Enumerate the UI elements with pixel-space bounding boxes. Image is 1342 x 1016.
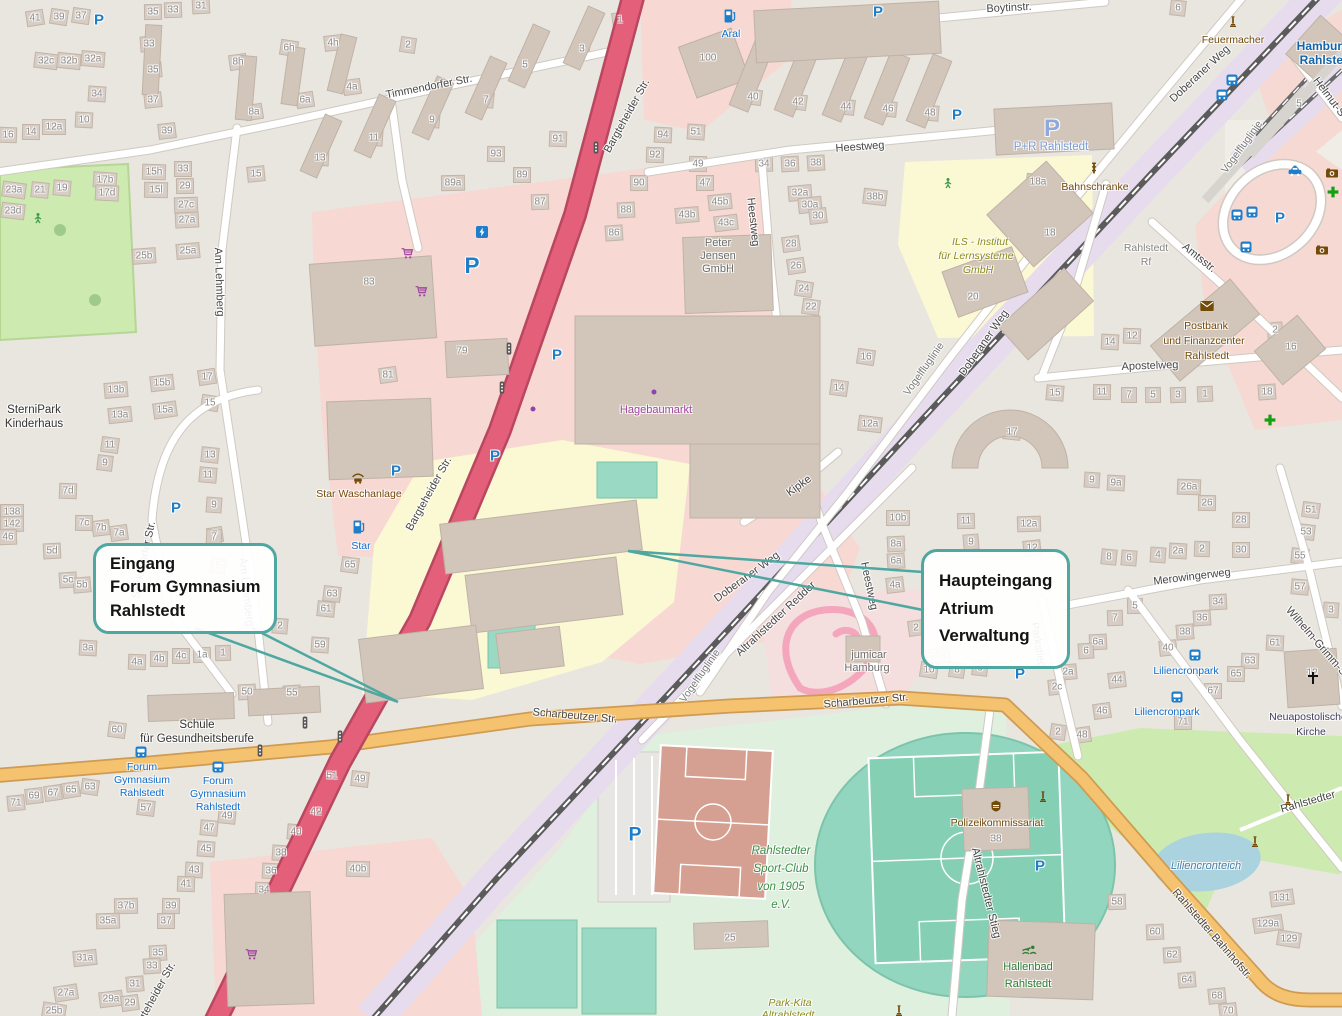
house-number: 33	[143, 39, 154, 50]
house-number: 57	[1294, 582, 1305, 593]
callout-main-entrance-atrium: Haupteingang Atrium Verwaltung	[921, 549, 1070, 669]
house-number: 20	[967, 292, 978, 303]
house-number: 65	[1230, 669, 1241, 680]
house-number: 6a	[299, 95, 310, 106]
house-number: 51	[690, 127, 701, 138]
house-number: 32b	[61, 56, 78, 67]
house-number: 4h	[327, 38, 338, 49]
supermarket-cart-icon	[401, 247, 414, 260]
poi-label: Postbank	[1184, 320, 1228, 332]
map-canvas[interactable]: Bargteheider Str.Bargteheider Str.Bargte…	[0, 0, 1342, 1016]
poi-label: Gymnasium	[114, 774, 170, 786]
house-number: 12a	[862, 419, 879, 430]
house-number: 67	[1207, 686, 1218, 697]
house-number: 34	[258, 885, 269, 896]
house-number: 22	[805, 302, 816, 313]
house-number: 6	[1083, 646, 1089, 657]
parking-icon: P	[873, 5, 883, 20]
bus-stop-icon	[1190, 650, 1201, 661]
house-number: 36	[265, 866, 276, 877]
house-number: 15b	[154, 378, 171, 389]
house-number: 8	[1106, 552, 1112, 563]
house-number: 13	[314, 153, 325, 164]
poi-label: GmbH	[963, 264, 993, 276]
house-number: 1	[1202, 389, 1208, 400]
house-number: 26a	[1181, 482, 1198, 493]
house-number: 83	[363, 277, 374, 288]
house-number: 16	[2, 130, 13, 141]
house-number: 13b	[108, 385, 125, 396]
house-number: 87	[534, 197, 545, 208]
house-number: 8a	[890, 539, 901, 550]
house-number: 2a	[1062, 667, 1073, 678]
house-number: 46	[1096, 706, 1107, 717]
house-number: 40	[1162, 643, 1173, 654]
house-number: 11	[369, 133, 379, 144]
church-cross-icon	[1308, 672, 1318, 685]
house-number: 23d	[5, 206, 22, 217]
house-number: 65	[344, 560, 355, 571]
street-label: Timmendorfer Str.	[385, 73, 473, 101]
house-number: 35a	[100, 916, 117, 927]
traffic-light-icon	[499, 382, 505, 395]
house-number: 81	[382, 370, 393, 381]
street-label: Heestweg	[835, 139, 885, 154]
house-number: 17b	[97, 175, 114, 186]
house-number: 7b	[95, 523, 106, 534]
house-number: 37	[160, 916, 171, 927]
house-number: 31	[195, 1, 206, 12]
house-number: 5d	[46, 546, 57, 557]
poi-label: Kinderhaus	[5, 418, 63, 430]
house-number: 3a	[82, 643, 93, 654]
callout-line: Haupteingang	[939, 567, 1052, 595]
street-label: Vogelfluglinie	[901, 340, 946, 398]
house-number: 2	[913, 623, 919, 634]
poi-label: Hamburg-	[1297, 39, 1342, 53]
house-number: 11	[203, 470, 213, 481]
house-number: 4a	[346, 82, 357, 93]
street-label: Apostelweg	[1121, 359, 1178, 373]
poi-label: Forum	[127, 761, 157, 773]
traffic-light-icon	[506, 343, 512, 356]
house-number: 45	[200, 844, 211, 855]
house-number: 63	[1244, 656, 1255, 667]
house-number: 38	[1179, 627, 1190, 638]
poi-label: für Lernsysteme	[938, 250, 1013, 262]
street-label: Altrahlstedter Stieg	[969, 846, 1003, 939]
poi-label: Peter	[705, 237, 731, 249]
house-number: 17	[201, 372, 212, 383]
house-number: 53	[1300, 527, 1311, 538]
house-number: 48	[1076, 730, 1087, 741]
street-label: Amtsstr.	[1180, 241, 1218, 275]
poi-label: ILS - Institut	[952, 236, 1008, 248]
poi-label: Rahlstedt	[196, 801, 240, 813]
callout-line: Forum Gymnasium	[110, 576, 260, 599]
poi-label: Bahnschranke	[1061, 181, 1128, 193]
house-number: 91	[552, 134, 563, 145]
house-number: 37	[147, 95, 158, 106]
house-number: 23a	[6, 185, 23, 196]
house-number: 51	[1305, 505, 1316, 516]
house-number: 4b	[153, 654, 164, 665]
house-number: 55	[1294, 551, 1305, 562]
house-number: 8a	[248, 107, 259, 118]
house-number: 49	[354, 774, 365, 785]
parking-icon: P	[1275, 211, 1285, 226]
bus-stop-icon	[1247, 207, 1258, 218]
street-label: Heestweg	[744, 197, 761, 247]
house-number: 94	[657, 130, 668, 141]
parking-icon: P	[628, 825, 641, 845]
poi-label: Rahlstedt	[120, 787, 164, 799]
house-number: 30	[1235, 545, 1246, 556]
house-number: 86	[608, 228, 619, 239]
house-number: 5c	[63, 575, 74, 586]
poi-label: SterniPark	[7, 404, 61, 416]
poi-label: Liliencronteich	[1171, 860, 1241, 872]
house-number: 79	[456, 346, 467, 357]
house-number: 27a	[179, 215, 196, 226]
house-number: 45b	[712, 197, 729, 208]
house-number: 35	[147, 7, 158, 18]
swimming-icon	[1022, 945, 1037, 956]
police-icon	[990, 800, 1002, 812]
monument-icon	[1250, 836, 1260, 848]
poi-label: von 1905	[757, 881, 804, 893]
house-number: 39	[165, 901, 176, 912]
house-number: 7	[211, 532, 217, 543]
callout-line: Atrium	[939, 595, 1052, 623]
traffic-light-icon	[257, 745, 263, 758]
parking-icon: P	[94, 13, 104, 28]
house-number: 27c	[178, 200, 194, 211]
house-number: 29a	[103, 994, 120, 1005]
house-number: 43c	[718, 218, 734, 229]
parking-icon: P	[171, 501, 181, 516]
house-number: 31	[129, 979, 140, 990]
house-number: 1	[220, 648, 226, 659]
poi-label: Feuermacher	[1202, 34, 1264, 46]
car-wash-icon	[352, 472, 365, 485]
house-number: 13	[204, 450, 215, 461]
poi-label: Jensen	[700, 250, 735, 262]
traffic-light-icon	[302, 717, 308, 730]
parking-icon: P	[1035, 859, 1045, 874]
house-number: 18	[1044, 228, 1055, 239]
house-number: 9	[968, 537, 974, 548]
house-number: 33	[177, 164, 188, 175]
poi-label: Liliencronpark	[1153, 665, 1218, 677]
house-number: 49	[221, 811, 232, 822]
house-number: 59	[314, 640, 325, 651]
house-number: 7a	[113, 528, 124, 539]
bus-stop-icon	[136, 747, 147, 758]
house-number: 4a	[889, 580, 900, 591]
fuel-icon	[353, 521, 366, 534]
parking-icon: P	[1015, 667, 1025, 682]
poi-label: Hallenbad	[1003, 961, 1053, 973]
house-number: 43b	[679, 210, 696, 221]
house-number: 60	[1149, 927, 1160, 938]
house-number: 9	[1089, 475, 1095, 486]
house-number: 25	[724, 933, 735, 944]
street-label: Scharbeutzer Str.	[532, 706, 618, 725]
taxi-icon	[1288, 166, 1303, 177]
house-number: 40	[747, 92, 758, 103]
house-number: 8h	[232, 57, 243, 68]
house-number: 90	[633, 178, 644, 189]
pr-parking-icon: P	[1044, 117, 1060, 141]
house-number: 5b	[76, 580, 87, 591]
house-number: 41	[180, 879, 191, 890]
house-number: 50	[241, 687, 252, 698]
house-number: 36	[1196, 613, 1207, 624]
poi-label: Sport-Club	[754, 863, 809, 875]
house-number: 7c	[79, 518, 90, 529]
house-number: 34	[1212, 597, 1223, 608]
house-number: 25b	[136, 251, 153, 262]
parking-icon: P	[952, 108, 962, 123]
poi-label: Liliencronpark	[1134, 706, 1199, 718]
poi-label: Polizeikommissariat	[951, 817, 1044, 829]
house-number: 44	[840, 102, 851, 113]
house-number: 2	[1199, 544, 1205, 555]
house-number: 2	[1055, 727, 1061, 738]
house-number: 39	[53, 12, 64, 23]
house-number: 2	[277, 621, 283, 632]
house-number: 15	[1049, 388, 1060, 399]
house-number: 24	[798, 284, 809, 295]
house-number: 3	[579, 44, 585, 55]
traffic-light-icon	[593, 142, 599, 155]
map-label-layer: Bargteheider Str.Bargteheider Str.Bargte…	[0, 0, 1342, 1016]
house-number: 7	[483, 95, 489, 106]
bus-stop-icon	[1241, 242, 1252, 253]
house-number: 32c	[38, 56, 54, 67]
house-number: 5	[522, 60, 528, 71]
supermarket-cart-icon	[415, 285, 428, 298]
house-number: 29	[124, 998, 135, 1009]
parking-icon: P	[391, 464, 401, 479]
house-number: 17d	[99, 188, 116, 199]
house-number: 60	[111, 725, 122, 736]
house-number: 71	[1177, 717, 1188, 728]
house-number: 38	[990, 834, 1001, 845]
house-number: 9a	[1110, 478, 1121, 489]
house-number: 64	[1181, 975, 1192, 986]
house-number: 68	[1211, 991, 1222, 1002]
mail-icon	[1200, 301, 1214, 311]
house-number: 30	[812, 211, 823, 222]
monument-icon	[1228, 16, 1238, 28]
house-number: 1	[617, 15, 623, 26]
house-number: 1a	[196, 650, 207, 661]
house-number: 7	[1126, 390, 1132, 401]
house-number: 10b	[890, 513, 907, 524]
street-label: Helmut-S	[1310, 75, 1342, 119]
house-number: 5	[1296, 99, 1302, 110]
parking-icon: P	[464, 255, 479, 278]
parking-icon: P	[552, 348, 562, 363]
house-number: 29	[179, 181, 190, 192]
poi-label: Hagebaumarkt	[620, 404, 692, 416]
house-number: 33	[146, 961, 157, 972]
house-number: 31a	[77, 953, 94, 964]
house-number: 51	[326, 771, 337, 782]
poi-label: Kirche	[1296, 726, 1326, 738]
bus-stop-icon	[1172, 692, 1183, 703]
house-number: 67	[47, 788, 58, 799]
house-number: 35	[152, 948, 163, 959]
house-number: 61	[320, 604, 331, 615]
house-number: 15	[250, 169, 261, 180]
street-label: Vogelfluglinie	[677, 647, 722, 705]
house-number: 4c	[176, 651, 187, 662]
house-number: 138	[4, 507, 21, 518]
house-number: 9	[211, 500, 217, 511]
poi-label: e.V.	[771, 899, 791, 911]
house-number: 63	[326, 589, 337, 600]
house-number: 55	[286, 688, 297, 699]
street-label: Scharbeutzer Str.	[823, 691, 909, 710]
street-label: Rahlstedter Bahnhofstr.	[1170, 887, 1254, 982]
house-number: 11	[1097, 387, 1107, 398]
street-label: Bargteheider Str.	[602, 77, 653, 155]
house-number: 9	[429, 115, 435, 126]
playground-icon	[942, 177, 954, 189]
house-number: 25a	[180, 246, 197, 257]
house-number: 47	[699, 178, 710, 189]
callout-line: Rahlstedt	[110, 600, 260, 623]
poi-label: GmbH	[702, 263, 734, 275]
poi-label: Rf	[1141, 256, 1152, 268]
house-number: 16	[1285, 342, 1296, 353]
house-number: 88	[620, 205, 631, 216]
poi-label: Schule	[179, 719, 214, 731]
house-number: 15a	[157, 405, 174, 416]
parking-icon: P	[490, 449, 500, 464]
house-number: 27a	[58, 988, 75, 999]
house-number: 10	[78, 115, 89, 126]
house-number: 37	[75, 11, 86, 22]
street-label: Merowingerweg	[1153, 566, 1232, 587]
house-number: 34	[91, 89, 102, 100]
house-number: 100	[700, 53, 717, 64]
house-number: 12a	[46, 122, 63, 133]
house-number: 32a	[85, 54, 102, 65]
house-number: 2c	[1052, 682, 1063, 693]
house-number: 44	[1111, 675, 1122, 686]
house-number: 12a	[1021, 519, 1038, 530]
house-number: 6a	[890, 556, 901, 567]
pharmacy-cross-icon	[1264, 414, 1277, 427]
ev-charging-icon	[476, 226, 488, 238]
street-label: Doberaner Weg	[712, 549, 782, 604]
house-number: 32a	[792, 188, 809, 199]
house-number: 5	[1150, 390, 1156, 401]
house-number: 14	[25, 127, 36, 138]
poi-label: Star Waschanlage	[316, 488, 401, 500]
house-number: 5	[1132, 601, 1138, 612]
poi-label: für Gesundheitsberufe	[140, 733, 254, 745]
house-number: 40b	[350, 864, 367, 875]
house-number: 71	[10, 798, 21, 809]
house-number: 6h	[283, 43, 294, 54]
callout-line: Verwaltung	[939, 622, 1052, 650]
street-label: Am Lehmberg	[212, 247, 226, 316]
house-number: 129a	[1257, 919, 1279, 930]
house-number: 69	[28, 791, 39, 802]
house-number: 14	[1104, 337, 1115, 348]
poi-label: jumicar	[851, 649, 886, 661]
house-number: 36	[784, 159, 795, 170]
house-number: 21	[34, 185, 45, 196]
house-number: 19	[56, 183, 67, 194]
street-label: Altrahlstedter Redder	[734, 579, 818, 659]
house-number: 35	[147, 65, 158, 76]
house-number: 12	[1126, 331, 1137, 342]
house-number: 39	[161, 126, 172, 137]
house-number: 4a	[131, 657, 142, 668]
poi-label: Rahlstedter	[752, 845, 811, 857]
house-number: 142	[4, 519, 21, 530]
poi-label: Rahlstedt	[1124, 242, 1168, 254]
house-number: 58	[1111, 897, 1122, 908]
street-label: Boytinstr.	[986, 1, 1032, 15]
monument-icon	[894, 1005, 904, 1016]
house-number: 38b	[867, 192, 884, 203]
playground-icon	[32, 212, 44, 224]
house-number: 18	[1261, 387, 1272, 398]
monument-icon	[1038, 791, 1048, 803]
house-number: 38	[810, 158, 821, 169]
house-number: 46	[2, 532, 13, 543]
house-number: 93	[490, 149, 501, 160]
house-number: 65	[65, 785, 76, 796]
house-number: 2a	[1172, 546, 1183, 557]
traffic-light-icon	[337, 731, 343, 744]
bus-stop-icon	[1217, 90, 1228, 101]
bus-stop-icon	[213, 762, 224, 773]
house-number: 49	[692, 159, 703, 170]
house-number: 9	[102, 458, 108, 469]
camera-icon	[1316, 246, 1328, 255]
house-number: 28	[785, 239, 796, 250]
poi-label: Rahlstedt	[1005, 978, 1051, 990]
house-number: 33	[167, 5, 178, 16]
street-label: Vogelfluglinie	[1219, 118, 1265, 175]
poi-label: Neuapostolische	[1269, 711, 1342, 723]
house-number: 16	[860, 352, 871, 363]
camera-icon	[1326, 169, 1338, 178]
house-number: 7d	[62, 486, 73, 497]
house-number: 11	[105, 440, 115, 451]
house-number: 26	[1201, 498, 1212, 509]
house-number: 43	[188, 865, 199, 876]
house-number: 70	[1222, 1006, 1233, 1016]
callout-line: Eingang	[110, 553, 260, 576]
callout-entrance-forum-gymnasium: Eingang Forum Gymnasium Rahlstedt	[93, 543, 277, 634]
house-number: 2	[1272, 325, 1278, 336]
poi-label: Hamburg	[844, 662, 889, 674]
poi-label: und Finanzcenter	[1163, 335, 1244, 347]
house-number: 3	[1175, 390, 1181, 401]
poi-label: Gymnasium	[190, 788, 246, 800]
supermarket-cart-icon	[245, 948, 258, 961]
house-number: 13a	[112, 410, 129, 421]
